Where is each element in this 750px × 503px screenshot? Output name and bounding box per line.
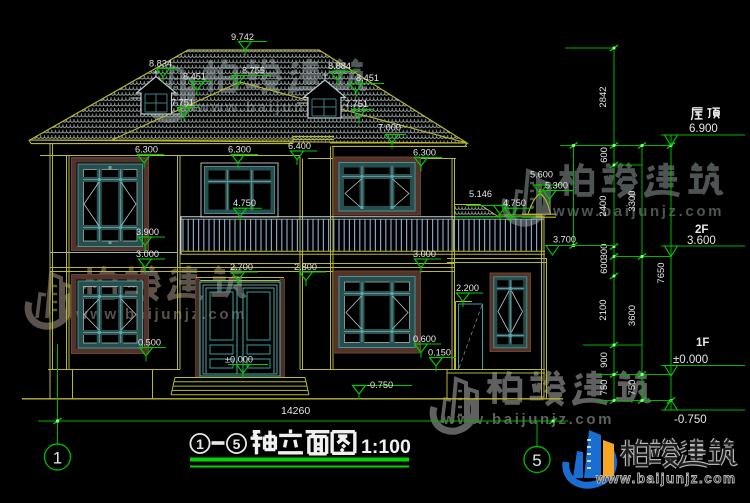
- svg-text:±0.000: ±0.000: [225, 355, 253, 365]
- svg-text:14260: 14260: [281, 405, 310, 417]
- svg-text:3.000: 3.000: [413, 249, 436, 259]
- svg-text:0.600: 0.600: [413, 334, 436, 344]
- svg-text:750: 750: [599, 380, 610, 396]
- svg-text:6.300: 6.300: [413, 148, 436, 158]
- svg-text:3.900: 3.900: [136, 227, 159, 237]
- svg-text:3.600: 3.600: [687, 235, 716, 247]
- svg-text:5.300: 5.300: [545, 181, 568, 191]
- svg-text:1: 1: [53, 449, 62, 468]
- svg-text:1: 1: [196, 436, 204, 452]
- svg-text:4.750: 4.750: [503, 198, 526, 208]
- svg-text:8.834: 8.834: [149, 59, 172, 69]
- svg-text:2.800: 2.800: [294, 262, 317, 272]
- svg-text:6.300: 6.300: [228, 145, 251, 155]
- svg-text:3600: 3600: [627, 305, 638, 326]
- svg-text:7.751: 7.751: [171, 98, 194, 108]
- svg-text:7650: 7650: [656, 262, 667, 283]
- svg-text:8.755: 8.755: [242, 66, 265, 76]
- svg-text:6.900: 6.900: [689, 123, 718, 135]
- svg-text:2100: 2100: [598, 299, 609, 320]
- svg-text:3.700: 3.700: [553, 235, 576, 245]
- svg-text:600: 600: [599, 258, 610, 274]
- svg-text:3.000: 3.000: [136, 249, 159, 259]
- svg-text:600: 600: [599, 147, 610, 163]
- svg-text:8.884: 8.884: [328, 61, 351, 71]
- svg-text:5: 5: [233, 436, 241, 452]
- svg-text:1:100: 1:100: [361, 436, 411, 458]
- svg-text:2842: 2842: [598, 86, 609, 107]
- svg-text:4.750: 4.750: [233, 198, 256, 208]
- svg-text:1F: 1F: [696, 337, 709, 349]
- svg-text:-0.750: -0.750: [367, 380, 393, 390]
- svg-text:3300: 3300: [627, 190, 638, 211]
- svg-text:900: 900: [599, 352, 610, 368]
- svg-text:2.200: 2.200: [456, 283, 479, 293]
- svg-text:6.300: 6.300: [135, 145, 158, 155]
- svg-text:0.150: 0.150: [428, 348, 451, 358]
- svg-text:2.700: 2.700: [230, 262, 253, 272]
- svg-text:5: 5: [532, 451, 541, 470]
- svg-text:±0.000: ±0.000: [673, 354, 708, 366]
- svg-text:0.500: 0.500: [138, 338, 161, 348]
- svg-text:6.400: 6.400: [288, 141, 311, 151]
- svg-text:www.baijunjz.com: www.baijunjz.com: [595, 471, 737, 486]
- svg-text:8.451: 8.451: [183, 72, 206, 82]
- svg-text:2400: 2400: [598, 195, 609, 216]
- svg-text:7.751: 7.751: [345, 99, 368, 109]
- svg-text:5.146: 5.146: [469, 189, 492, 199]
- svg-text:7.000: 7.000: [378, 123, 401, 133]
- svg-text:750: 750: [627, 380, 638, 396]
- svg-text:8.451: 8.451: [356, 73, 379, 83]
- svg-text:-0.750: -0.750: [674, 414, 707, 426]
- svg-text:9.742: 9.742: [231, 32, 254, 42]
- svg-text:5.600: 5.600: [530, 170, 553, 180]
